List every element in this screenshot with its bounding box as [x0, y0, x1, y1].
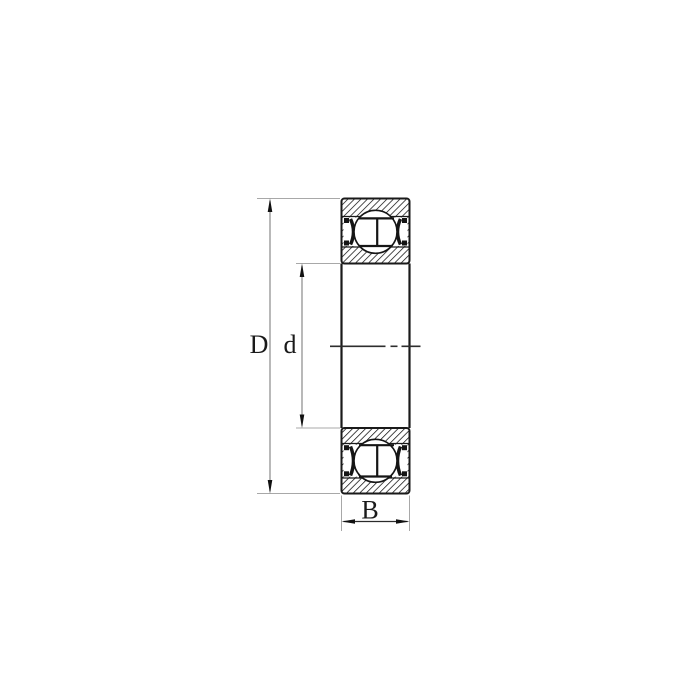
top-left-seal-anchor-upper [344, 218, 349, 223]
top-left-seal-anchor-lower [344, 241, 349, 246]
bottom-left-seal-anchor-lower [344, 471, 349, 476]
arrowhead-B-right [396, 519, 410, 524]
bearing-top-ring-section [342, 199, 410, 264]
bearing-drawing-canvas: D d B [0, 0, 700, 700]
top-right-seal-anchor-upper [402, 218, 407, 223]
bottom-right-seal-anchor-upper [402, 445, 407, 450]
arrowhead-B-left [342, 519, 356, 524]
bearing-cross-section-diagram: D d B [0, 0, 700, 700]
top-right-seal-anchor-lower [402, 241, 407, 246]
bottom-left-seal-anchor-upper [344, 445, 349, 450]
label-outer-diameter: D [250, 330, 269, 359]
bearing-bottom-ring-section [342, 428, 410, 494]
arrowhead-d-down [300, 415, 305, 429]
label-width: B [361, 496, 378, 525]
bottom-right-seal-anchor-lower [402, 471, 407, 476]
label-bore-diameter: d [284, 330, 297, 359]
arrowhead-D-down [268, 480, 273, 494]
arrowhead-d-up [300, 264, 305, 278]
arrowhead-D-up [268, 199, 273, 213]
dimension-width: B [342, 496, 410, 532]
